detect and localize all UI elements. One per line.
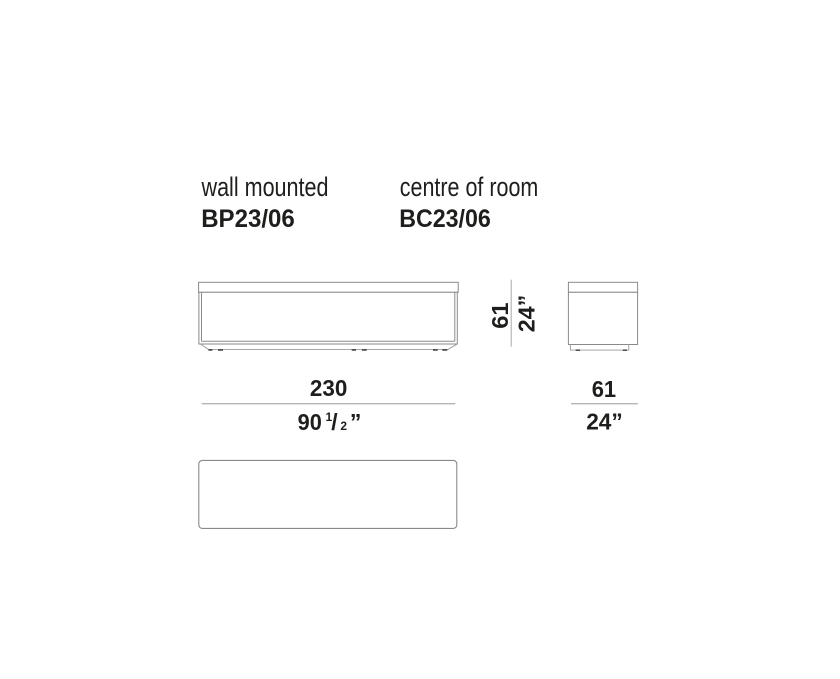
- svg-text:2: 2: [340, 419, 347, 433]
- svg-text:230: 230: [310, 375, 347, 401]
- svg-text:wall mounted: wall mounted: [201, 172, 329, 202]
- svg-text:centre of room: centre of room: [400, 172, 539, 202]
- svg-text:24”: 24”: [586, 408, 623, 434]
- svg-text:61: 61: [487, 302, 513, 329]
- svg-text:”: ”: [350, 409, 362, 435]
- svg-text:BP23/06: BP23/06: [201, 205, 295, 233]
- svg-text:61: 61: [592, 376, 617, 402]
- svg-text:BC23/06: BC23/06: [399, 205, 491, 233]
- svg-text:24”: 24”: [514, 295, 540, 333]
- svg-text:/: /: [331, 409, 338, 435]
- svg-text:90: 90: [298, 409, 322, 435]
